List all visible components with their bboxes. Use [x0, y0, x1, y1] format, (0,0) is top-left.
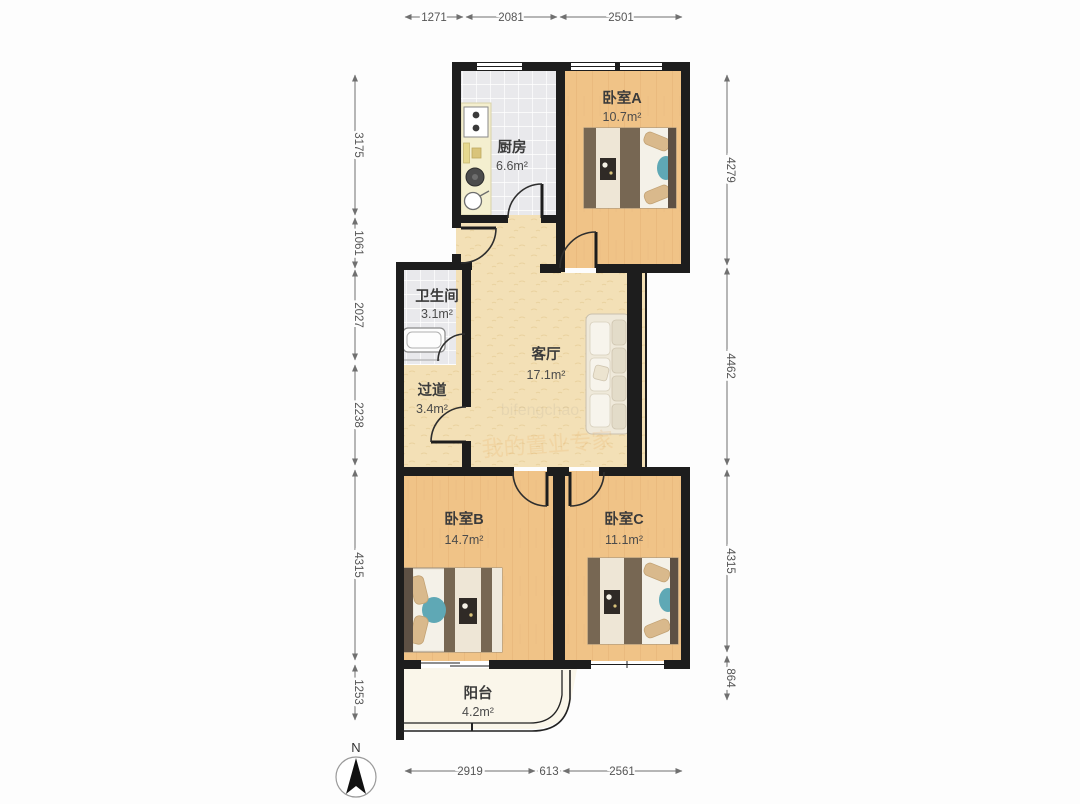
dimensions-bottom: 2919 613 2561 — [405, 766, 682, 778]
dim-top-2: 2501 — [608, 12, 634, 24]
dim-left-2: 2027 — [352, 302, 364, 328]
bed-b-icon — [404, 568, 502, 652]
stove-icon — [464, 107, 488, 137]
dim-top-1: 2081 — [498, 12, 524, 24]
dim-right-0: 4279 — [724, 157, 736, 183]
watermark-shadow-text: bifengchao — [501, 402, 579, 419]
dim-bottom-0: 2919 — [457, 766, 483, 778]
room-label-bedroom-b: 卧室B — [444, 510, 483, 528]
sink-icon — [466, 168, 484, 186]
dimensions-left: 3175 1061 2027 2238 4315 1253 — [352, 75, 364, 720]
dim-right-3: 864 — [724, 668, 736, 688]
room-area-balcony: 4.2m² — [462, 705, 494, 719]
dim-bottom-1: 613 — [539, 766, 558, 778]
room-area-kitchen: 6.6m² — [496, 159, 528, 173]
dim-left-3: 2238 — [352, 402, 364, 428]
room-area-bathroom: 3.1m² — [421, 307, 453, 321]
floor-plan: bifengchao 我的置业专家 — [0, 0, 1080, 804]
dim-left-1: 1061 — [352, 230, 364, 256]
dim-bottom-2: 2561 — [609, 766, 635, 778]
room-label-balcony: 阳台 — [464, 684, 493, 702]
dim-right-1: 4462 — [724, 353, 736, 379]
room-area-living: 17.1m² — [527, 368, 566, 382]
dim-left-4: 4315 — [352, 552, 364, 578]
balcony-slider-icon — [421, 661, 489, 668]
sofa-icon — [586, 314, 630, 434]
kitchen-counter — [461, 103, 491, 215]
room-label-living: 客厅 — [531, 345, 561, 363]
compass-label: N — [351, 740, 360, 755]
room-label-kitchen: 厨房 — [498, 138, 527, 156]
room-area-bedroom-c: 11.1m² — [605, 533, 643, 547]
dim-top-0: 1271 — [421, 12, 447, 24]
dim-left-5: 1253 — [352, 679, 364, 705]
room-label-bathroom: 卫生间 — [415, 287, 459, 305]
room-area-hallway: 3.4m² — [416, 402, 448, 416]
floor-plan-page: bifengchao 我的置业专家 — [0, 0, 1080, 804]
living-window-wall — [627, 273, 642, 467]
north-compass-icon: N — [336, 740, 376, 797]
room-area-bedroom-a: 10.7m² — [603, 110, 642, 124]
bed-a-icon — [584, 128, 676, 208]
room-area-bedroom-b: 14.7m² — [445, 533, 484, 547]
dimensions-top: 1271 2081 2501 — [405, 12, 682, 24]
room-label-bedroom-a: 卧室A — [602, 89, 642, 107]
dim-right-2: 4315 — [724, 548, 736, 574]
bedroom-c-window-icon — [591, 661, 664, 668]
bed-c-icon — [588, 558, 678, 644]
kitchen-window-icon — [477, 63, 522, 70]
room-label-hallway: 过道 — [418, 381, 447, 399]
dim-left-0: 3175 — [352, 132, 364, 158]
dimensions-right: 4279 4462 4315 864 — [724, 75, 736, 700]
room-label-bedroom-c: 卧室C — [604, 510, 644, 528]
